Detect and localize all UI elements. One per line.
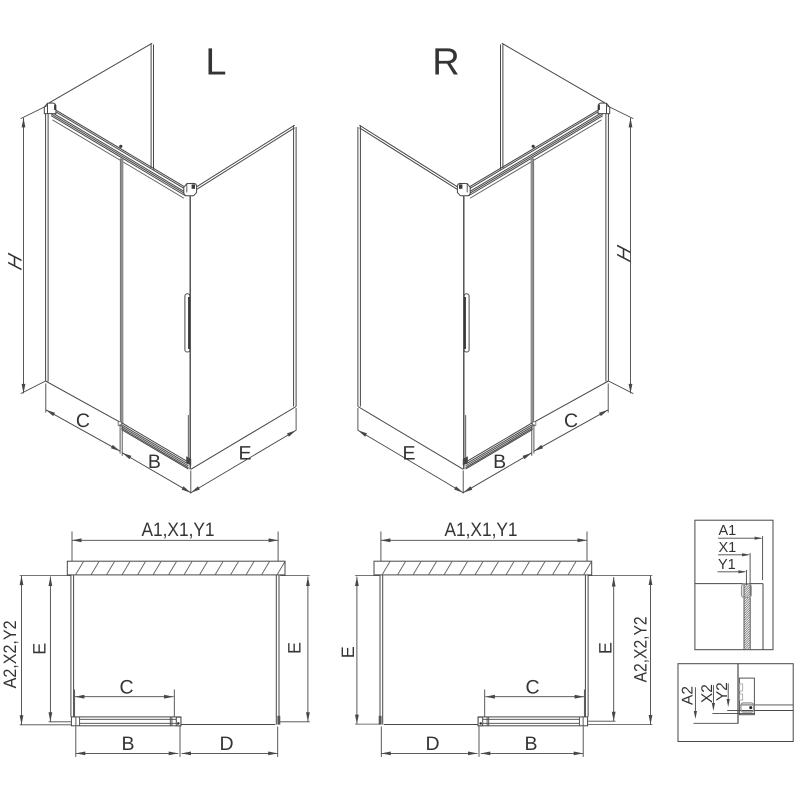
svg-text:B: B [493, 451, 506, 473]
svg-text:B: B [121, 733, 134, 755]
svg-text:A1: A1 [719, 523, 737, 539]
svg-text:A2: A2 [680, 686, 697, 705]
svg-text:C: C [119, 677, 133, 699]
svg-text:C: C [76, 410, 90, 432]
svg-text:E: E [238, 443, 251, 465]
svg-text:A1,X1,Y1: A1,X1,Y1 [142, 519, 215, 541]
svg-text:E: E [30, 643, 50, 655]
svg-text:D: D [425, 733, 439, 755]
svg-text:D: D [219, 733, 233, 755]
svg-text:A1,X1,Y1: A1,X1,Y1 [445, 519, 518, 541]
svg-text:L: L [205, 42, 226, 84]
svg-text:A2,X2,Y2: A2,X2,Y2 [0, 620, 20, 688]
svg-text:B: B [524, 733, 537, 755]
svg-text:C: C [564, 410, 578, 432]
svg-text:B: B [148, 451, 161, 473]
svg-text:E: E [338, 646, 358, 658]
svg-text:X1: X1 [719, 540, 737, 556]
svg-text:E: E [595, 642, 615, 654]
svg-text:R: R [432, 42, 459, 84]
svg-text:C: C [525, 677, 539, 699]
svg-text:A2,X2,Y2: A2,X2,Y2 [630, 616, 650, 682]
svg-text:Y1: Y1 [718, 557, 736, 573]
svg-text:E: E [402, 443, 415, 465]
svg-text:E: E [285, 642, 305, 654]
